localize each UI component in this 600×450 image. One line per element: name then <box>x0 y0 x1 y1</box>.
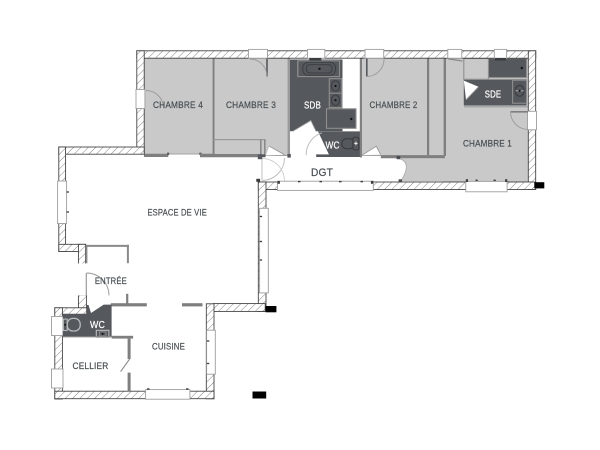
svg-text:WC: WC <box>90 319 105 331</box>
svg-text:CHAMBRE 4: CHAMBRE 4 <box>153 100 203 111</box>
svg-text:CHAMBRE 3: CHAMBRE 3 <box>226 100 276 111</box>
svg-text:ESPACE DE VIE: ESPACE DE VIE <box>147 208 207 219</box>
svg-text:SDB: SDB <box>304 101 321 112</box>
svg-text:CELLIER: CELLIER <box>73 361 109 372</box>
svg-text:SDE: SDE <box>485 90 502 101</box>
svg-text:CHAMBRE 1: CHAMBRE 1 <box>463 139 512 150</box>
svg-text:CUISINE: CUISINE <box>152 342 185 353</box>
svg-text:WC: WC <box>326 140 340 152</box>
svg-text:DGT: DGT <box>311 167 333 179</box>
svg-text:ENTRÉE: ENTRÉE <box>95 276 127 287</box>
svg-text:CHAMBRE 2: CHAMBRE 2 <box>370 100 418 111</box>
